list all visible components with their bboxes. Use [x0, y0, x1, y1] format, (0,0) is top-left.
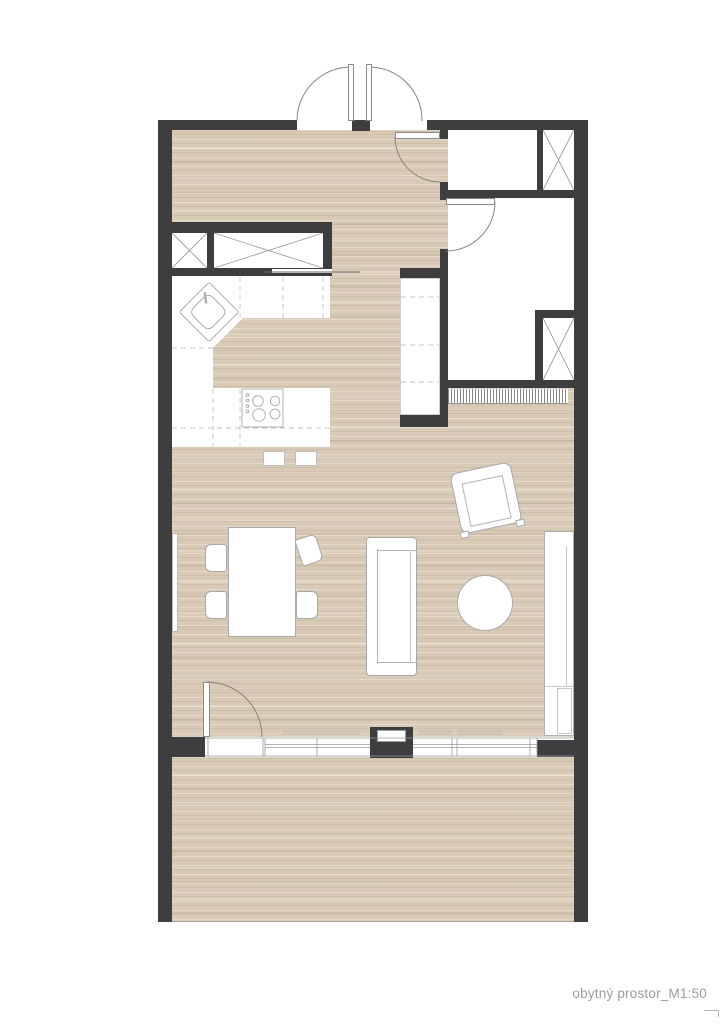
dining-chair-left-2	[205, 591, 227, 619]
entry-door-arc-right	[369, 67, 422, 121]
radiator-grille	[445, 388, 568, 404]
wardrobe-niche	[400, 278, 440, 415]
radiator	[172, 533, 178, 632]
armchair	[449, 461, 523, 535]
pillar-notch	[377, 730, 406, 742]
kitchen-counter-bottom	[172, 388, 330, 447]
sofa	[366, 537, 417, 676]
coffee-table	[457, 575, 513, 631]
entry-door-leaf-right	[366, 64, 372, 121]
entry-door-arc-left	[297, 67, 351, 121]
armchair-seat	[462, 475, 512, 527]
wall-shaft2-top	[535, 310, 574, 318]
wall-shaftband-divider	[207, 233, 214, 268]
sideboard-inner-box	[557, 688, 572, 734]
wall-top-right	[427, 120, 588, 130]
dining-chair-right-2	[296, 591, 318, 619]
wall-window-right-stub	[537, 740, 574, 757]
drawing-caption: obytný prostor_M1:50	[400, 986, 707, 1001]
sheet-corner-mark	[704, 1010, 719, 1017]
dining-chair-left-1	[205, 544, 227, 572]
wall-window-left-stub	[172, 737, 205, 757]
dining-table	[228, 527, 296, 637]
entry-door-leaf-left	[348, 64, 354, 121]
sofa-back-line	[377, 549, 378, 664]
wall-shaft2-left	[535, 310, 543, 388]
shaft-mid-right	[543, 318, 574, 380]
sideboard	[544, 531, 574, 736]
toilet-door-leaf	[395, 132, 440, 139]
wall-right	[574, 120, 588, 922]
toilet-room	[448, 130, 537, 190]
wall-bathroom-bottom	[443, 380, 574, 388]
wall-toilet-shaft-divider	[537, 130, 543, 198]
wall-wardrobe-bottom	[400, 415, 448, 427]
wall-entry-stub	[352, 120, 370, 131]
sideboard-line	[566, 546, 567, 686]
wall-wardrobe-top	[400, 268, 440, 278]
floor-plan: obytný prostor_M1:50	[0, 0, 724, 1024]
sofa-front-line	[410, 550, 411, 663]
pass-through-slit	[272, 269, 332, 273]
bar-stool-2	[295, 451, 317, 466]
shaft-entry	[172, 233, 207, 268]
wall-toilet-bottom	[443, 190, 574, 198]
wall-hall-main	[440, 249, 448, 427]
sideboard-divider	[545, 686, 573, 687]
wall-top-left	[158, 120, 297, 130]
bathroom-door-leaf	[446, 198, 495, 205]
bar-stool-1	[263, 451, 285, 466]
shaft-top-right	[543, 130, 574, 190]
balcony-door-leaf	[203, 682, 210, 737]
wall-hall-stub-a	[440, 130, 448, 139]
wall-shaftband-top	[158, 222, 332, 233]
duct-box	[214, 233, 323, 268]
wall-left	[158, 120, 172, 922]
terrace-floor	[172, 757, 574, 922]
